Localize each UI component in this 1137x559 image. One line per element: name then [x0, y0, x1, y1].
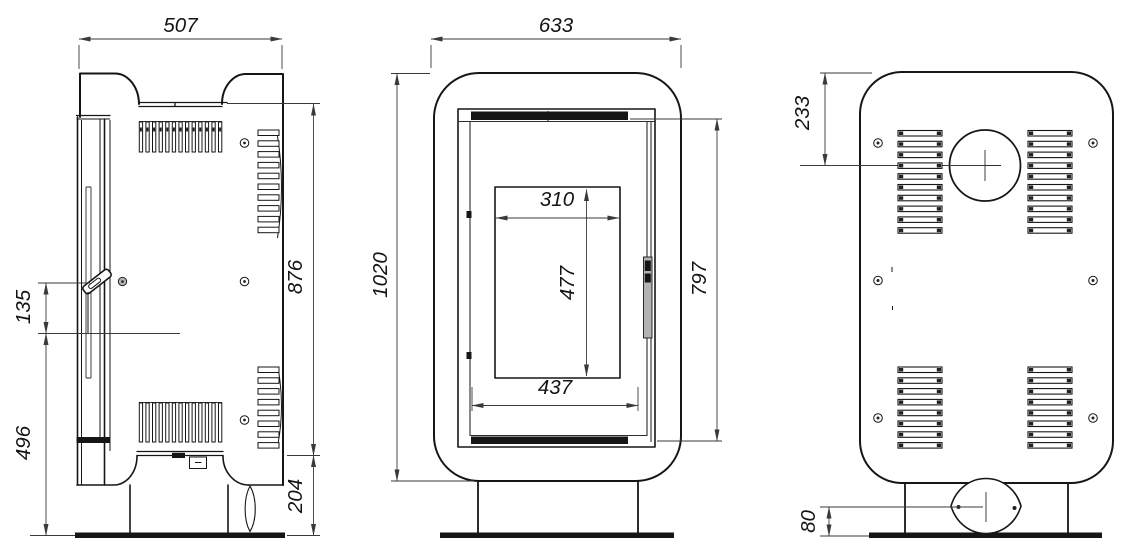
back-vent-slot-ul: [898, 217, 942, 223]
front-dimensions: 633 1020 797 310 477 437: [369, 14, 722, 481]
back-vent-cap: [1067, 153, 1071, 157]
back-vent-slot-ur: [1028, 217, 1072, 223]
side-bottom-vent-slat: [153, 403, 156, 442]
side-bottom-left-fillet: [77, 456, 137, 486]
back-air-inlet-screw-right: [1013, 506, 1017, 510]
back-dimensions: 233 80: [791, 73, 985, 536]
back-vent-cap: [1067, 132, 1071, 136]
back-vent-cap: [899, 218, 903, 222]
side-rear-vent-slot-lower: [258, 410, 279, 416]
back-vent-slot-ul: [898, 228, 942, 234]
side-rear-vent-slot-lower: [258, 389, 279, 395]
front-glass-width-label: 310: [540, 188, 575, 211]
side-width-label: 507: [163, 14, 199, 37]
back-screw-left-dot: [877, 417, 880, 420]
back-vent-cap: [899, 422, 903, 426]
back-vent-cap: [1029, 218, 1033, 222]
back-vent-cap: [899, 379, 903, 383]
back-vent-cap: [1029, 379, 1033, 383]
back-vent-slot-ur: [1028, 228, 1072, 234]
back-vent-slot-ur: [1028, 185, 1072, 191]
back-vent-slot-ll: [898, 389, 942, 395]
front-view: 633 1020 797 310 477 437: [369, 14, 722, 538]
front-door-top-strip: [471, 112, 628, 121]
side-top-vent-slat-tick: [160, 128, 162, 132]
back-vent-cap: [937, 207, 941, 211]
back-vent-cap: [937, 444, 941, 448]
back-vent-slot-ur: [1028, 206, 1072, 212]
side-rear-vent-slot-lower: [258, 432, 279, 438]
side-rear-vent-slot-lower: [258, 367, 279, 373]
back-vent-cap: [899, 390, 903, 394]
side-bottom-vent-slat: [166, 403, 169, 442]
back-vent-cap: [937, 390, 941, 394]
back-vent-cap: [899, 433, 903, 437]
back-vent-cap: [899, 411, 903, 415]
side-top-vent-slat-tick: [180, 128, 182, 132]
back-vent-cap: [937, 164, 941, 168]
back-vent-cap: [1029, 411, 1033, 415]
front-pedestal-edges: [478, 481, 638, 533]
back-vent-cap: [937, 175, 941, 179]
side-top-vent-slat-tick: [147, 128, 149, 132]
back-vent-cap: [1067, 411, 1071, 415]
back-vent-cap: [937, 411, 941, 415]
back-vent-slot-ur: [1028, 163, 1072, 169]
drawing-canvas: 507 876 204 135 496: [0, 0, 1137, 559]
side-bottom-vent-slat: [205, 403, 208, 442]
side-door-bottom-strip: [77, 437, 111, 443]
back-vent-cap: [1067, 379, 1071, 383]
back-vent-cap: [937, 132, 941, 136]
back-vent-slot-lr: [1028, 432, 1072, 438]
side-screw-dot: [243, 419, 246, 422]
side-top-vent-slat: [186, 122, 189, 152]
front-height-ext: [391, 74, 474, 482]
back-vent-cap: [1067, 175, 1071, 179]
back-vent-slot-ul: [898, 131, 942, 137]
back-vent-slot-ll: [898, 432, 942, 438]
back-vent-cap: [1029, 142, 1033, 146]
back-vent-slot-lr: [1028, 399, 1072, 405]
side-rear-vent-slot: [258, 141, 279, 147]
back-vent-cap: [1067, 422, 1071, 426]
stove-technical-drawing: 507 876 204 135 496: [0, 0, 1137, 559]
back-screw-right-dot: [1092, 142, 1095, 145]
back-vent-cap: [937, 422, 941, 426]
side-top-vent-slat-tick: [213, 128, 215, 132]
side-bottom-vent-slat: [212, 403, 215, 442]
back-vent-cap: [937, 433, 941, 437]
side-rear-vent-slot-lower: [258, 421, 279, 427]
side-upper-height-label: 876: [284, 259, 307, 294]
back-vent-slot-lr: [1028, 410, 1072, 416]
back-flue-label: 233: [791, 95, 814, 131]
side-handle-ext: [38, 283, 180, 334]
back-vent-cap: [1067, 433, 1071, 437]
back-vent-cap: [937, 153, 941, 157]
back-vent-cap: [937, 186, 941, 190]
back-vent-cap: [937, 142, 941, 146]
back-vent-cap: [1029, 444, 1033, 448]
back-vent-cap: [937, 400, 941, 404]
back-vent-cap: [1029, 164, 1033, 168]
back-vent-cap: [1067, 164, 1071, 168]
side-top-vent-slat-tick: [153, 128, 155, 132]
back-vent-slot-ul: [898, 174, 942, 180]
back-vent-slot-ur: [1028, 174, 1072, 180]
side-top-vent-slat: [159, 122, 162, 152]
side-base-plate: [75, 533, 285, 539]
side-top-vent-slat: [192, 122, 195, 152]
side-rear-vent-slot: [258, 206, 279, 212]
side-rear-vent-slot: [258, 227, 279, 233]
front-hinge-upper: [467, 211, 472, 218]
back-vent-cap: [1067, 390, 1071, 394]
back-vent-slot-ul: [898, 152, 942, 158]
back-vent-cap: [1067, 142, 1071, 146]
back-vent-cap: [937, 379, 941, 383]
side-bottom-vent-slat: [192, 403, 195, 442]
side-top-vent-slat: [172, 122, 175, 152]
side-top-vent-slat: [179, 122, 182, 152]
side-top-vent-slat: [205, 122, 208, 152]
back-vent-slot-ul: [898, 195, 942, 201]
back-vent-slot-ur: [1028, 131, 1072, 137]
side-rear-vent-slot: [258, 216, 279, 222]
back-vent-cap: [1029, 390, 1033, 394]
back-vent-cap: [937, 229, 941, 233]
back-vent-cap: [899, 229, 903, 233]
side-screw-dot: [243, 280, 246, 283]
back-vent-cap: [899, 207, 903, 211]
side-top-vent-slat: [153, 122, 156, 152]
back-vent-slot-lr: [1028, 378, 1072, 384]
front-base-plate: [440, 533, 674, 539]
side-rear-vent-slot: [258, 195, 279, 201]
side-rear-vent-slot-lower: [258, 443, 279, 449]
back-vent-cap: [1029, 207, 1033, 211]
back-vent-cap: [899, 368, 903, 372]
side-bottom-vent-slat: [146, 403, 149, 442]
back-vent-cap: [937, 218, 941, 222]
front-door-bottom-strip: [471, 437, 628, 445]
back-vent-cap: [1067, 229, 1071, 233]
back-vent-slot-ll: [898, 399, 942, 405]
back-panel-tick-marks: [892, 267, 893, 310]
side-top-vent-slat: [146, 122, 149, 152]
side-rear-vent-slot-lower: [258, 399, 279, 405]
back-screw-right-dot: [1092, 417, 1095, 420]
side-bottom-vent-slat: [179, 403, 182, 442]
back-vent-cap: [1029, 422, 1033, 426]
front-height-label: 1020: [369, 252, 392, 298]
back-vent-slot-ll: [898, 378, 942, 384]
back-vent-cap: [1067, 368, 1071, 372]
back-vent-cap: [899, 400, 903, 404]
side-top-vent-slat: [219, 122, 222, 152]
side-rear-vent-slot-lower: [258, 378, 279, 384]
back-vent-slot-ll: [898, 367, 942, 373]
side-handle-pivot-dot: [121, 280, 124, 283]
back-vent-cap: [899, 196, 903, 200]
front-handle-block-upper: [645, 261, 651, 272]
side-top-vent-slat: [139, 122, 142, 152]
front-opening-label: 437: [538, 376, 574, 399]
side-bottom-vent-slat: [172, 403, 175, 442]
side-bottom-vent-slat: [186, 403, 189, 442]
side-pedestal-leaf-detail: [245, 486, 255, 532]
side-rear-vent-slot: [258, 162, 279, 168]
back-vent-cap: [1029, 196, 1033, 200]
back-vent-slot-ll: [898, 443, 942, 449]
back-vent-cap: [1029, 433, 1033, 437]
side-pedestal-edges: [130, 485, 228, 533]
side-top-deck-lines: [139, 103, 227, 107]
back-screw-right-dot: [1092, 279, 1095, 282]
back-vent-cap: [1029, 186, 1033, 190]
side-bottom-right-fillet: [223, 456, 283, 486]
back-vent-slot-ll: [898, 410, 942, 416]
back-vent-cap: [1067, 196, 1071, 200]
back-vent-slot-ur: [1028, 195, 1072, 201]
back-vent-slot-ul: [898, 163, 942, 169]
side-lower-label: 496: [12, 425, 35, 460]
back-vent-slot-ul: [898, 206, 942, 212]
side-rear-vent-slot: [258, 130, 279, 136]
back-vent-cap: [937, 196, 941, 200]
back-vent-cap: [1029, 132, 1033, 136]
back-vent-cap: [899, 142, 903, 146]
back-view: 233 80: [791, 72, 1113, 538]
back-vent-cap: [899, 132, 903, 136]
back-vent-slot-ur: [1028, 141, 1072, 147]
back-vent-cap: [1029, 368, 1033, 372]
side-bottom-vent-slat: [199, 403, 202, 442]
back-vent-cap: [899, 153, 903, 157]
side-plinth-label: 204: [284, 479, 307, 514]
side-view: 507 876 204 135 496: [12, 14, 320, 538]
side-rear-vent-slot: [258, 152, 279, 158]
side-front-tower-outline: [80, 74, 139, 118]
back-vent-slot-lr: [1028, 367, 1072, 373]
front-width-label: 633: [539, 14, 574, 37]
back-vent-slot-ul: [898, 141, 942, 147]
side-top-vent-slat-tick: [173, 128, 175, 132]
side-top-vent-slat-tick: [140, 128, 142, 132]
back-vent-slot-ll: [898, 421, 942, 427]
side-top-vent-slat-tick: [186, 128, 188, 132]
back-vent-slot-lr: [1028, 421, 1072, 427]
back-vent-slot-ur: [1028, 152, 1072, 158]
back-vent-cap: [899, 186, 903, 190]
front-door-height-label: 797: [688, 260, 711, 296]
side-top-vent-slat: [199, 122, 202, 152]
side-top-vent-slat-tick: [199, 128, 201, 132]
back-vent-cap: [937, 368, 941, 372]
back-screw-left-dot: [877, 142, 880, 145]
back-vent-cap: [899, 175, 903, 179]
back-screw-left-dot: [877, 279, 880, 282]
back-vent-cap: [1067, 444, 1071, 448]
back-vent-slot-ul: [898, 185, 942, 191]
side-top-vent-slat-tick: [193, 128, 195, 132]
side-handle-label: 135: [12, 289, 35, 324]
back-vent-slot-lr: [1028, 443, 1072, 449]
side-bottom-vent-slat: [219, 403, 222, 442]
back-inlet-label: 80: [797, 510, 820, 533]
side-top-vent-slat-tick: [166, 128, 168, 132]
back-vent-cap: [1029, 153, 1033, 157]
front-handle-block-lower: [645, 274, 651, 283]
side-screw-dot: [243, 142, 246, 145]
side-dimensions: 507 876 204 135 496: [12, 14, 320, 536]
side-top-vent-slat-tick: [219, 128, 221, 132]
side-top-vent-slat: [212, 122, 215, 152]
side-width-ext: [79, 45, 282, 69]
front-hinge-lower: [467, 352, 472, 359]
back-vent-cap: [1067, 186, 1071, 190]
side-rear-vent-slot: [258, 184, 279, 190]
side-top-vent-slat: [166, 122, 169, 152]
side-bottom-vent-slat: [139, 403, 142, 442]
side-rear-vent-slot: [258, 173, 279, 179]
front-width-ext: [431, 45, 681, 68]
side-ashpan-tab: [172, 453, 185, 458]
back-vent-cap: [1067, 218, 1071, 222]
back-vent-cap: [899, 444, 903, 448]
back-vent-cap: [1029, 229, 1033, 233]
back-vent-slot-lr: [1028, 389, 1072, 395]
back-vent-cap: [1067, 207, 1071, 211]
back-vent-cap: [1067, 400, 1071, 404]
back-vent-cap: [1029, 175, 1033, 179]
side-bottom-vent-slat: [159, 403, 162, 442]
back-vent-cap: [1029, 400, 1033, 404]
side-top-vent-slat-tick: [206, 128, 208, 132]
back-vent-cap: [899, 164, 903, 168]
front-glass-height-label: 477: [556, 264, 579, 300]
